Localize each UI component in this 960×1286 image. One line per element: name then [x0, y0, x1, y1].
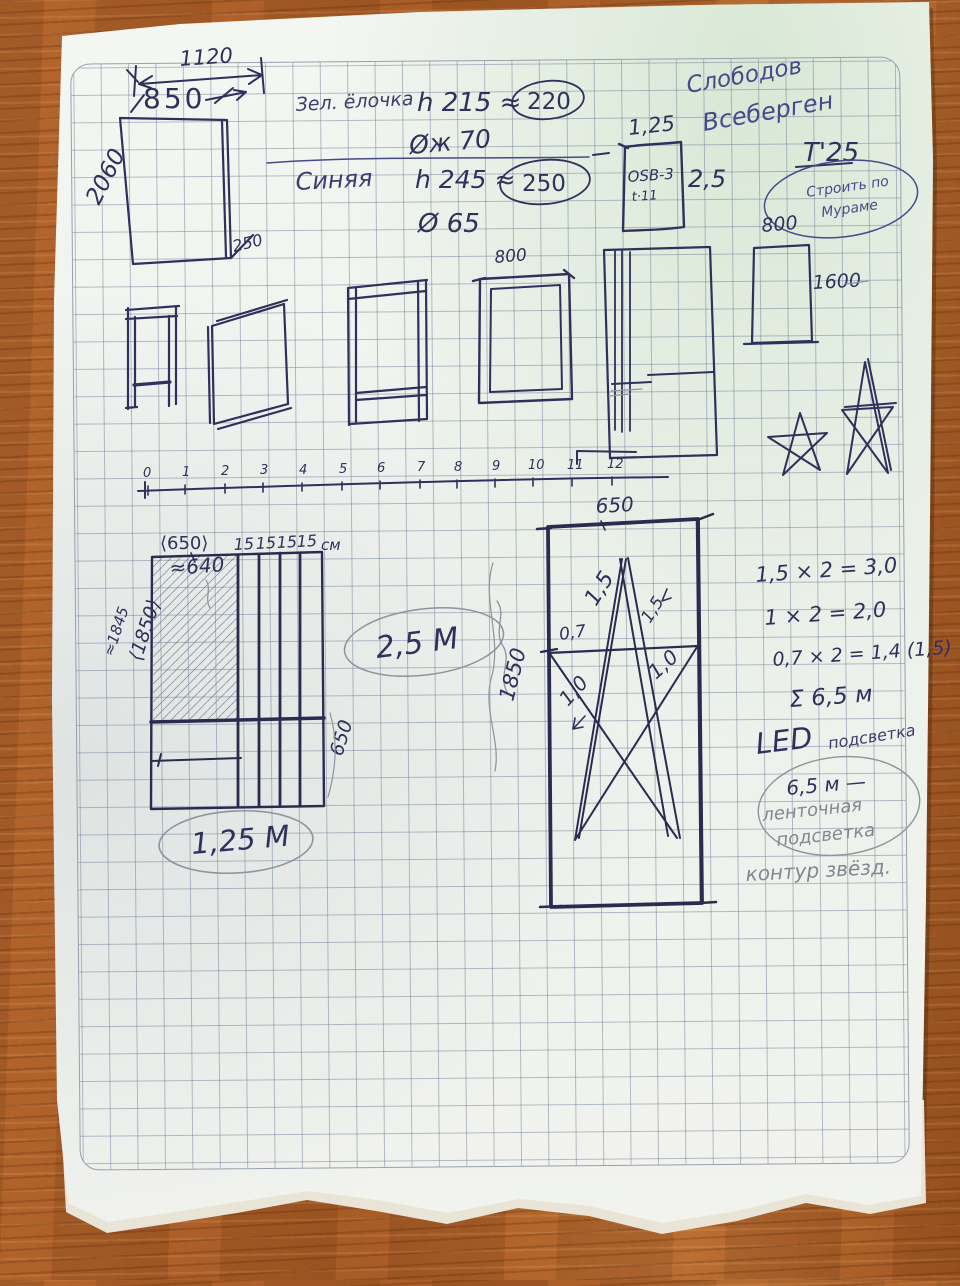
calculations-block: 1,5 × 2 = 3,0 1 × 2 = 2,0 0,7 × 2 = 1,4 … [745, 553, 953, 886]
green-tree-height: h 215 ≈ [417, 88, 521, 118]
blue-tree-height-alt: 250 [522, 171, 566, 197]
ruler-tick-label: 1 [182, 465, 190, 480]
calc-line2: 1 × 2 = 2,0 [764, 598, 887, 630]
star-board-sketch: 650 1850 0,7 1,5 1,5 1,0 1,0 [489, 492, 716, 907]
starboard-height-label: 1850 [495, 646, 531, 704]
panel-height-label: 1600 [812, 269, 861, 294]
osb-outline [619, 142, 684, 231]
oval-line2: ленточная [760, 795, 863, 826]
star-icon [842, 359, 896, 474]
label-25m-text: 2,5 М [374, 621, 461, 666]
board-width-label: ⟨650⟩ [160, 533, 208, 554]
calc-line3: 0,7 × 2 = 1,4 (1,5) [772, 637, 953, 671]
lined-panel-verticals [615, 251, 630, 432]
ruler-tick-label: 7 [417, 460, 426, 475]
small-frame-bar [134, 382, 170, 385]
strip-label-4: 15 [296, 531, 317, 551]
led-label: LED [754, 720, 815, 761]
calc-line1: 1,5 × 2 = 3,0 [755, 553, 898, 587]
star-icon [768, 413, 827, 475]
stars-pair [768, 359, 896, 475]
blue-tree-label: Синяя [295, 164, 373, 196]
ruler-tick-label: 9 [492, 459, 500, 474]
panel-800x1600: 800 1600 [744, 212, 868, 344]
osb-material-label: OSB-3 [627, 165, 674, 186]
lined-panel-pencil-marks [609, 389, 642, 396]
osb-height-label: 2,5 [688, 165, 726, 193]
small-frame-sketch [126, 306, 179, 409]
panel-width-label: 800 [761, 212, 799, 237]
ruler-tick-label: 10 [528, 458, 545, 473]
stamp-line1: Строить по [805, 174, 889, 201]
starboard-midline [541, 646, 698, 653]
led-note: подсветка [827, 720, 917, 753]
strip-label-1: 15 [233, 534, 254, 554]
double-frame-inner [490, 285, 562, 392]
starboard-outline [548, 519, 702, 907]
author-line2: Всеберген [700, 86, 835, 137]
tree-notes: Зел. ёлочка h 215 ≈ 220 Øж 70 Синяя h 24… [267, 77, 592, 239]
strip-unit-label: см [321, 536, 341, 554]
board-strip-lines [238, 553, 300, 806]
strip-label-3: 15 [276, 532, 297, 552]
pencil-brace [489, 563, 496, 771]
board-width-approx: ≈640 [169, 552, 225, 580]
osb-thickness-label: t·11 [631, 188, 658, 205]
ruler-scale: 0 1 2 3 4 5 6 7 8 9 10 11 12 [138, 451, 668, 498]
ruler-tick-label: 8 [454, 460, 462, 475]
ink-sketch-layer: 1120 850 2060 250 Зел. ёлочка h 215 ≈ 22… [0, 0, 960, 1280]
hatched-area [153, 555, 238, 722]
panel-outline [744, 245, 818, 344]
photo-of-sketch: { "cabinet": {"total_width":"1120","door… [0, 0, 960, 1280]
strip-label-2: 15 [255, 533, 276, 553]
board-125-sketch: ⟨650⟩ 15 15 15 15 см ≈640 ≈1845 ⟨1850⟩ 6… [100, 531, 358, 877]
cabinet-sketch: 1120 850 2060 250 [81, 43, 264, 264]
segment-mid-label: 0,7 [558, 621, 588, 645]
lined-panel-outline [604, 247, 717, 458]
oval-line3: подсветка [775, 820, 876, 851]
ruler-tick-label: 6 [377, 461, 385, 476]
starboard-width-label: 650 [595, 492, 634, 518]
board-lower-height: 650 [326, 717, 358, 758]
starboard-overshoots [537, 514, 716, 907]
calc-sum: Σ 6,5 м [789, 681, 874, 713]
perspective-box-sketch [208, 300, 291, 429]
cabinet-depth-label: 250 [230, 230, 264, 256]
ruler-tick-label: 5 [339, 462, 347, 477]
double-frame-outer [473, 270, 574, 403]
ruler-tick-label: 4 [299, 463, 307, 478]
frame-sketches-row: 800 [126, 245, 717, 458]
ruler-tick-label: 0 [143, 466, 151, 481]
osb-left-dash [593, 153, 609, 155]
board-partial-line [151, 754, 241, 766]
ruler-tick-label: 3 [260, 463, 268, 478]
segment-bl-label: 1,0 [554, 671, 593, 711]
board-total-label: 1,25 М [190, 818, 291, 860]
cabinet-height-label: 2060 [81, 145, 131, 209]
ruler-tick-label: 2 [221, 464, 229, 479]
author-block: Слободов Всеберген Т'25 Строить по Мурам… [685, 53, 923, 246]
ruler-tick-label: 11 [567, 458, 584, 473]
ruler-line [138, 477, 668, 498]
osb-width-label: 1,25 [627, 111, 676, 140]
author-line1: Слободов [685, 53, 804, 99]
blue-tree-diameter: Ø 65 [417, 209, 480, 239]
stamp-line2: Мураме [820, 197, 879, 221]
frame800-width-label: 800 [494, 245, 528, 268]
lined-panel-horizontals [612, 372, 713, 384]
label-25m-group: 2,5 М [341, 599, 508, 692]
green-tree-diameter: Øж 70 [407, 124, 492, 160]
tall-frame-sketch [348, 280, 427, 425]
green-tree-label: Зел. ёлочка [295, 88, 414, 116]
green-tree-height-alt: 220 [527, 89, 571, 115]
ruler-tick-label: 12 [607, 457, 624, 472]
bottom-note: контур звёзд. [745, 854, 892, 886]
cabinet-door-width-label: 850 [143, 82, 205, 115]
cabinet-total-width-label: 1120 [179, 43, 234, 71]
